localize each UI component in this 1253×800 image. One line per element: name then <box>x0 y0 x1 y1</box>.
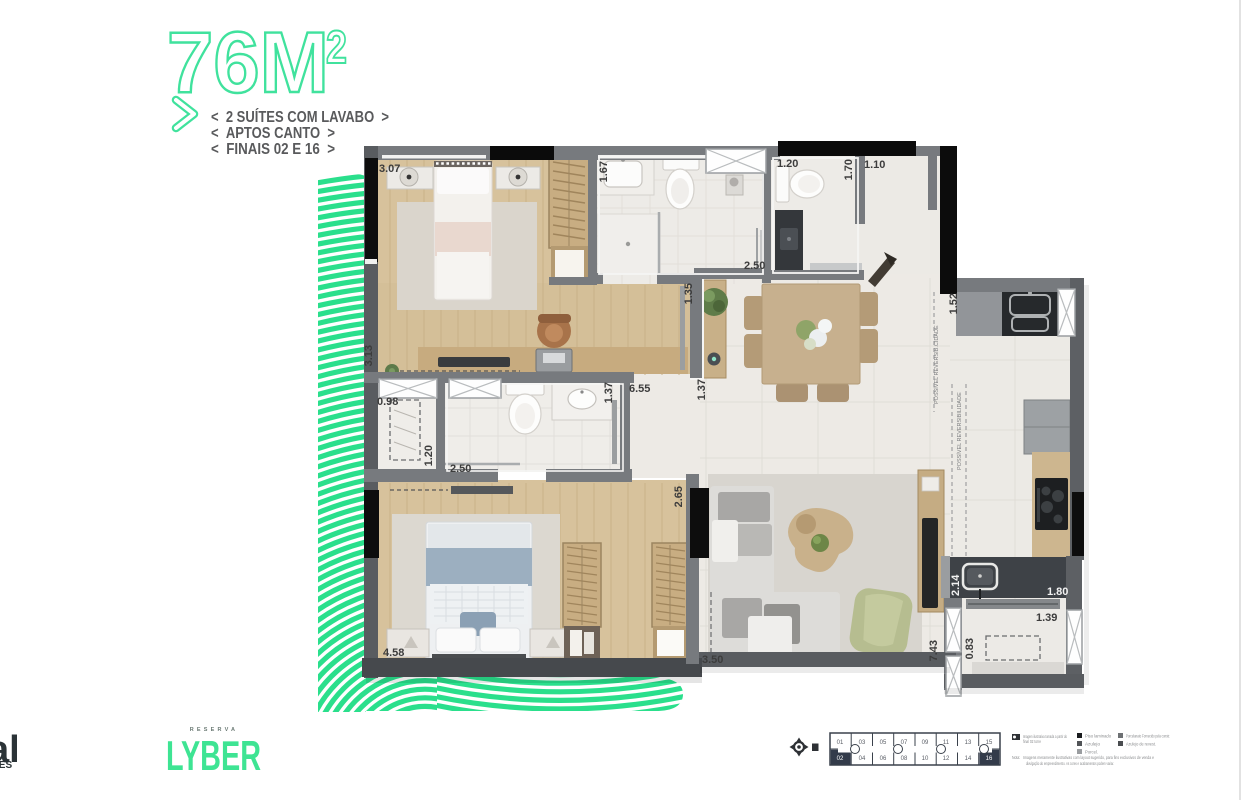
svg-text:Piso laminado: Piso laminado <box>1085 734 1111 739</box>
svg-text:03: 03 <box>859 740 866 746</box>
svg-text:15: 15 <box>986 740 993 746</box>
svg-text:3.07: 3.07 <box>379 163 400 175</box>
svg-text:12: 12 <box>943 756 950 762</box>
svg-text:1.52: 1.52 <box>948 293 960 314</box>
svg-text:0.98: 0.98 <box>377 396 398 408</box>
svg-text:POSSÍVEL REVERSIBILIDADE: POSSÍVEL REVERSIBILIDADE <box>956 392 963 470</box>
svg-text:1.70: 1.70 <box>843 159 855 180</box>
svg-text:01: 01 <box>837 740 844 746</box>
svg-text:3.13: 3.13 <box>363 345 375 366</box>
svg-text:09: 09 <box>922 740 929 746</box>
svg-text:1.35: 1.35 <box>683 283 695 304</box>
svg-text:2.50: 2.50 <box>450 463 471 475</box>
svg-text:07: 07 <box>901 740 908 746</box>
svg-text:Azulejo de revest.: Azulejo de revest. <box>1126 742 1156 747</box>
svg-text:0.83: 0.83 <box>964 638 976 659</box>
svg-text:02: 02 <box>837 756 844 762</box>
svg-text:1.20: 1.20 <box>777 158 798 170</box>
svg-text:< FINAIS 02 E 16 >: < FINAIS 02 E 16 > <box>211 141 335 158</box>
svg-text:Porcel.: Porcel. <box>1085 750 1098 755</box>
svg-text:final 02 torre: final 02 torre <box>1023 739 1041 744</box>
svg-text:11: 11 <box>943 740 950 746</box>
svg-text:2.65: 2.65 <box>673 486 685 507</box>
svg-text:Porcelanato Fornecido pela con: Porcelanato Fornecido pela constr. <box>1126 734 1170 739</box>
svg-text:13: 13 <box>965 740 972 746</box>
svg-text:divulgação do empreendimento.: divulgação do empreendimento. As cores e… <box>1026 761 1114 766</box>
svg-text:< APTOS CANTO >: < APTOS CANTO > <box>211 125 335 142</box>
svg-text:2.50: 2.50 <box>744 260 765 272</box>
svg-text:LYBER: LYBER <box>166 732 261 779</box>
svg-text:1.67: 1.67 <box>598 161 610 182</box>
svg-text:76M: 76M <box>167 15 329 111</box>
svg-text:< 2 SUÍTES COM LAVABO >: < 2 SUÍTES COM LAVABO > <box>211 109 389 126</box>
svg-text:3.50: 3.50 <box>702 654 723 666</box>
svg-text:1.37: 1.37 <box>603 382 615 403</box>
svg-text:7.43: 7.43 <box>928 640 940 661</box>
svg-text:14: 14 <box>965 756 972 762</box>
svg-text:05: 05 <box>880 740 887 746</box>
svg-text:Azulejo: Azulejo <box>1085 742 1100 747</box>
svg-text:1.39: 1.39 <box>1036 612 1057 624</box>
svg-text:2.14: 2.14 <box>950 574 962 596</box>
svg-text:04: 04 <box>859 756 866 762</box>
svg-text:6.55: 6.55 <box>629 383 650 395</box>
svg-text:16: 16 <box>986 756 993 762</box>
svg-text:1.37: 1.37 <box>696 379 708 400</box>
svg-text:Nota: Imagens meramente ilus: Nota: Imagens meramente ilustrativas com… <box>1012 755 1154 760</box>
svg-text:10: 10 <box>922 756 929 762</box>
svg-text:2: 2 <box>326 21 347 73</box>
svg-text:ÕES: ÕES <box>0 758 12 771</box>
svg-text:1.20: 1.20 <box>423 445 435 466</box>
svg-text:4.58: 4.58 <box>383 647 404 659</box>
svg-text:1.80: 1.80 <box>1047 586 1068 598</box>
svg-text:08: 08 <box>901 756 908 762</box>
svg-text:06: 06 <box>880 756 887 762</box>
svg-text:1.10: 1.10 <box>864 159 885 171</box>
svg-text:POSSÍVEL REVERSIB.CIDADE: POSSÍVEL REVERSIB.CIDADE <box>933 325 940 404</box>
